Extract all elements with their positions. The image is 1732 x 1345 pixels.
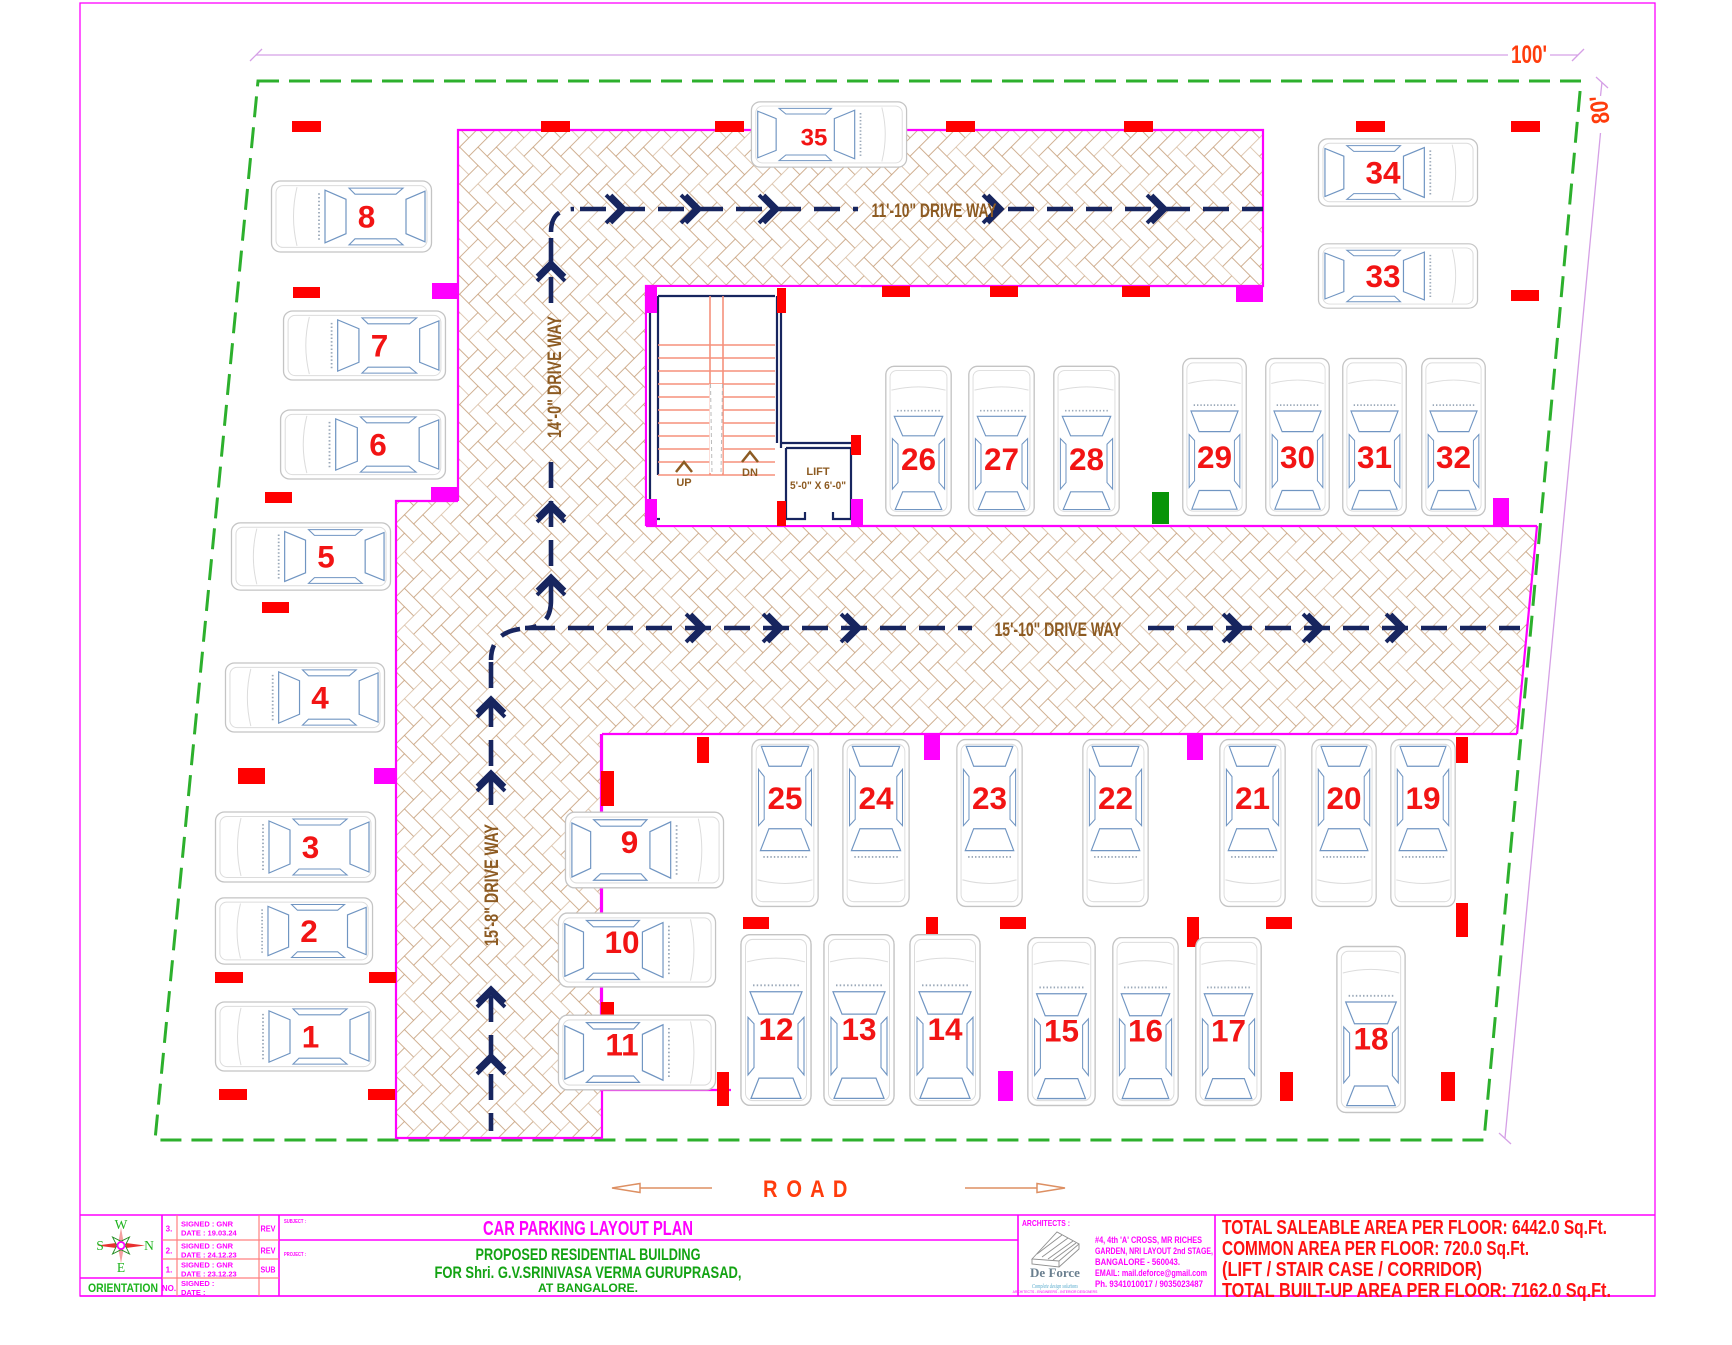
svg-text:17: 17 (1211, 1013, 1246, 1049)
svg-text:33: 33 (1365, 258, 1400, 294)
svg-text:GARDEN, NRI LAYOUT 2nd STAGE,: GARDEN, NRI LAYOUT 2nd STAGE, (1095, 1246, 1213, 1257)
svg-text:(LIFT / STAIR CASE / CORRIDOR): (LIFT / STAIR CASE / CORRIDOR) (1222, 1259, 1482, 1281)
svg-text:18: 18 (1353, 1021, 1388, 1057)
svg-text:TOTAL SALEABLE AREA PER FLOOR:: TOTAL SALEABLE AREA PER FLOOR: 6442.0 Sq… (1222, 1217, 1607, 1239)
svg-text:1: 1 (302, 1019, 320, 1055)
svg-text:24: 24 (858, 780, 894, 816)
svg-text:32: 32 (1436, 439, 1471, 475)
svg-text:S: S (96, 1238, 104, 1253)
svg-text:4: 4 (311, 680, 329, 716)
svg-text:SIGNED : GNR: SIGNED : GNR (181, 1242, 234, 1251)
svg-text:ARCHITECTS :: ARCHITECTS : (1022, 1218, 1070, 1228)
svg-text:27: 27 (984, 441, 1019, 477)
svg-text:35: 35 (801, 125, 828, 152)
svg-text:FOR Shri. G.V.SRINIVASA VERMA: FOR Shri. G.V.SRINIVASA VERMA GURUPRASAD… (435, 1263, 742, 1282)
svg-text:100': 100' (1511, 41, 1547, 69)
svg-text:CAR PARKING LAYOUT PLAN: CAR PARKING LAYOUT PLAN (483, 1218, 693, 1240)
svg-text:10: 10 (604, 924, 639, 960)
svg-text:COMMON AREA PER FLOOR: 720.0 S: COMMON AREA PER FLOOR: 720.0 Sq.Ft. (1222, 1238, 1529, 1260)
svg-text:E: E (117, 1260, 125, 1275)
svg-text:14: 14 (927, 1011, 963, 1047)
svg-text:80': 80' (1585, 94, 1616, 125)
svg-text:2: 2 (300, 913, 318, 949)
svg-text:25: 25 (767, 780, 802, 816)
svg-text:Complete design solutions: Complete design solutions (1032, 1283, 1078, 1290)
svg-text:34: 34 (1365, 155, 1401, 191)
svg-text:19: 19 (1405, 780, 1440, 816)
svg-text:5'-0" X 6'-0": 5'-0" X 6'-0" (790, 480, 846, 492)
svg-text:21: 21 (1235, 780, 1270, 816)
svg-text:30: 30 (1280, 439, 1315, 475)
svg-text:ORIENTATION: ORIENTATION (88, 1283, 158, 1295)
svg-text:UP: UP (676, 477, 691, 489)
svg-text:De Force: De Force (1030, 1265, 1080, 1280)
svg-text:W: W (115, 1217, 128, 1232)
svg-text:20: 20 (1326, 780, 1361, 816)
svg-text:EMAIL: mail.deforce@gmail.com: EMAIL: mail.deforce@gmail.com (1095, 1268, 1207, 1279)
svg-text:LIFT: LIFT (806, 466, 829, 478)
svg-text:PROJECT :: PROJECT : (284, 1252, 306, 1258)
svg-text:15'-10" DRIVE WAY: 15'-10" DRIVE WAY (995, 619, 1122, 641)
svg-text:16: 16 (1128, 1013, 1163, 1049)
svg-text:1.: 1. (166, 1266, 173, 1275)
svg-text:7: 7 (371, 328, 389, 364)
svg-text:ARCHITECTS - ENGINEERS - INTER: ARCHITECTS - ENGINEERS - INTERIOR DESIGN… (1013, 1290, 1099, 1294)
svg-text:R O A D: R O A D (763, 1176, 849, 1203)
svg-text:DATE : 19.03.24: DATE : 19.03.24 (181, 1229, 238, 1238)
svg-text:3.: 3. (166, 1225, 173, 1234)
svg-text:SIGNED : GNR: SIGNED : GNR (181, 1220, 234, 1229)
svg-text:DATE : 24.12.23: DATE : 24.12.23 (181, 1251, 237, 1260)
svg-text:TOTAL BUILT-UP AREA PER FLOOR:: TOTAL BUILT-UP AREA PER FLOOR: 7162.0 Sq… (1222, 1280, 1611, 1302)
svg-text:23: 23 (972, 780, 1007, 816)
svg-text:3: 3 (302, 829, 320, 865)
svg-text:N: N (144, 1238, 154, 1253)
svg-text:SUB: SUB (261, 1265, 276, 1275)
svg-text:14'-0" DRIVE WAY: 14'-0" DRIVE WAY (544, 316, 566, 438)
svg-text:DN: DN (742, 467, 758, 479)
svg-text:REV: REV (261, 1224, 276, 1234)
svg-text:9: 9 (621, 824, 639, 860)
svg-text:PROPOSED RESIDENTIAL BUILDING: PROPOSED RESIDENTIAL BUILDING (476, 1245, 701, 1264)
svg-text:SUBJECT :: SUBJECT : (284, 1219, 306, 1225)
svg-text:Ph. 9341010017 / 9035023487: Ph. 9341010017 / 9035023487 (1095, 1279, 1203, 1290)
svg-text:DATE : 23.12.23: DATE : 23.12.23 (181, 1270, 237, 1279)
svg-text:11'-10" DRIVE WAY: 11'-10" DRIVE WAY (872, 200, 997, 222)
svg-text:13: 13 (841, 1011, 876, 1047)
svg-text:29: 29 (1197, 439, 1232, 475)
svg-text:15: 15 (1044, 1013, 1079, 1049)
svg-text:2.: 2. (166, 1247, 173, 1256)
svg-text:REV: REV (261, 1246, 276, 1256)
svg-text:26: 26 (901, 441, 936, 477)
svg-text:SIGNED :: SIGNED : (181, 1279, 214, 1288)
svg-text:22: 22 (1098, 780, 1133, 816)
svg-text:BANGALORE - 560043.: BANGALORE - 560043. (1095, 1257, 1180, 1268)
svg-text:12: 12 (758, 1011, 793, 1047)
svg-text:11: 11 (605, 1027, 638, 1063)
svg-text:DATE :: DATE : (181, 1288, 205, 1297)
svg-text:#4, 4th 'A' CROSS, MR RICHES: #4, 4th 'A' CROSS, MR RICHES (1095, 1235, 1202, 1246)
svg-text:NO.: NO. (162, 1284, 176, 1293)
svg-text:28: 28 (1069, 441, 1104, 477)
svg-text:31: 31 (1357, 439, 1392, 475)
svg-text:8: 8 (358, 199, 376, 235)
svg-text:6: 6 (369, 427, 387, 463)
svg-text:5: 5 (317, 539, 335, 575)
svg-text:AT BANGALORE.: AT BANGALORE. (538, 1281, 638, 1295)
svg-text:SIGNED : GNR: SIGNED : GNR (181, 1261, 234, 1270)
svg-text:15'-8" DRIVE WAY: 15'-8" DRIVE WAY (481, 824, 503, 946)
